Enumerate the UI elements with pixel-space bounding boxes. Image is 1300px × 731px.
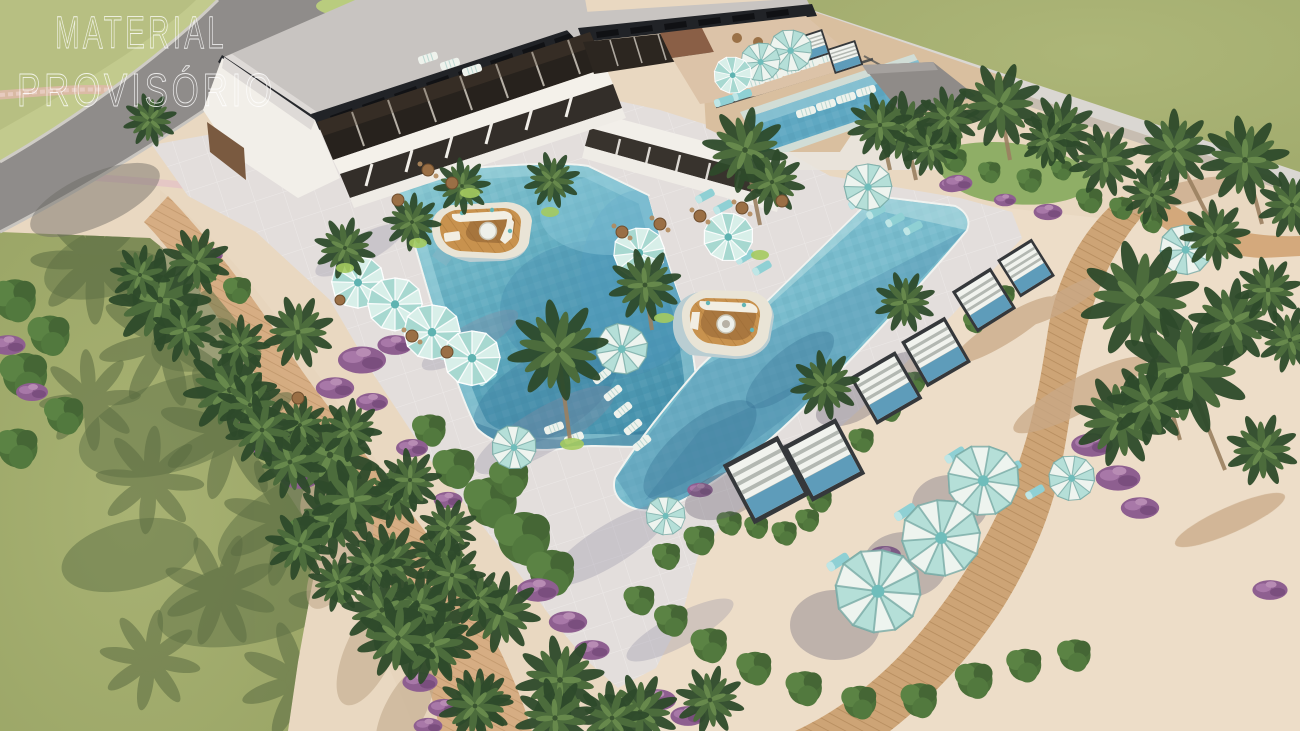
svg-text:PROVISÓRIO: PROVISÓRIO: [17, 64, 276, 116]
svg-text:MATERIAL: MATERIAL: [55, 7, 227, 58]
